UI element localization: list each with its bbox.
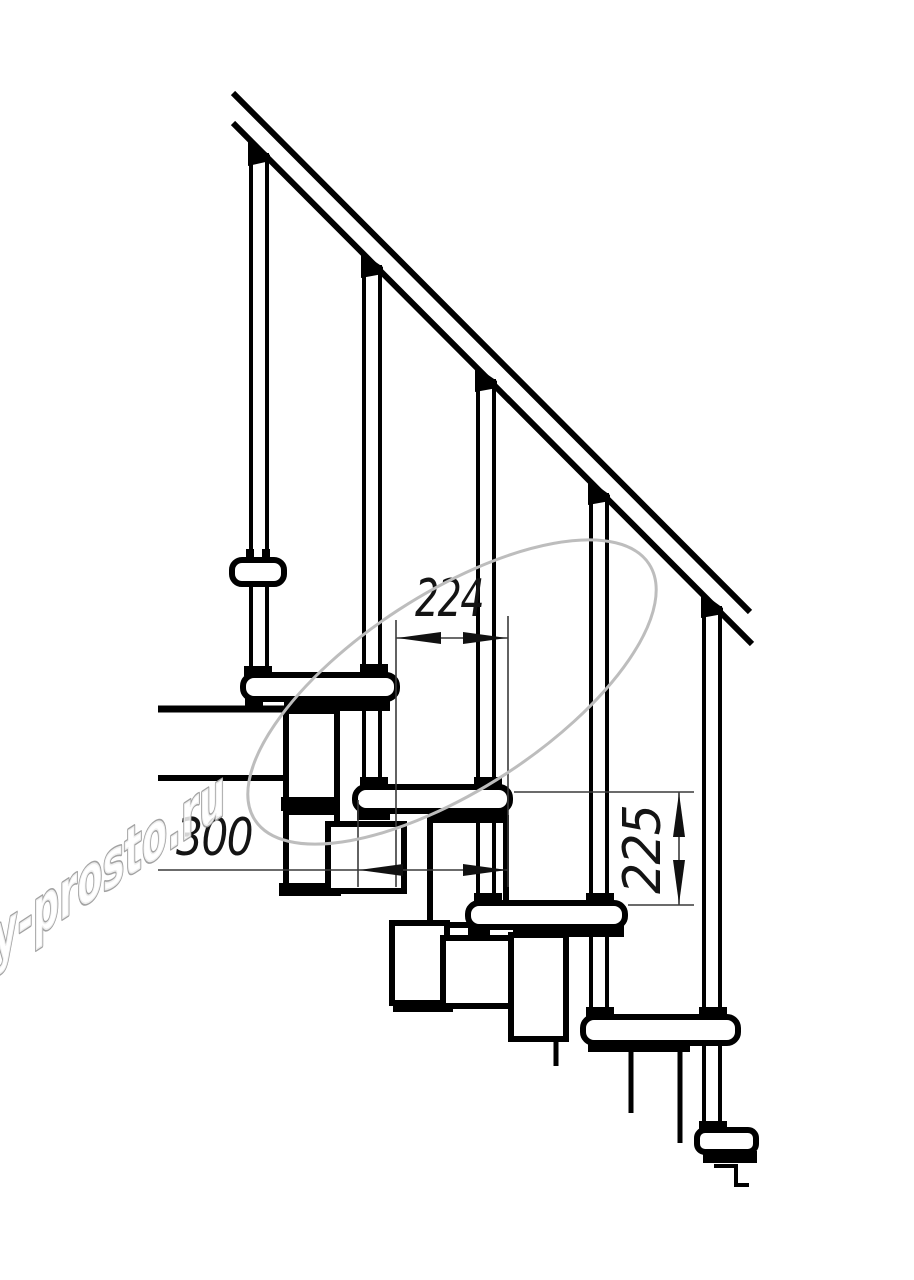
baluster-cap bbox=[474, 893, 502, 903]
module-box bbox=[511, 935, 566, 1039]
tread-3 bbox=[468, 903, 625, 927]
module-box bbox=[328, 824, 404, 891]
technical-drawing-page: 224 300 225 lestnicy-prosto.ru bbox=[0, 0, 914, 1280]
dimension-arrow bbox=[673, 860, 685, 904]
module-box bbox=[392, 923, 447, 1003]
tread-2 bbox=[355, 787, 510, 811]
module-edge-line bbox=[714, 1166, 749, 1185]
baluster-cap bbox=[360, 664, 388, 676]
baluster-4 bbox=[591, 495, 607, 1017]
baluster-cap bbox=[586, 1007, 614, 1017]
baluster-cap bbox=[699, 1121, 727, 1131]
tread-1 bbox=[243, 675, 397, 699]
baluster-3 bbox=[478, 381, 494, 903]
module-box bbox=[286, 711, 337, 803]
baluster-cap bbox=[699, 1007, 727, 1017]
stringer-modules bbox=[279, 711, 749, 1185]
watermark-text: lestnicy-prosto.ru bbox=[0, 752, 225, 1070]
module-box bbox=[443, 938, 517, 1006]
tread-4 bbox=[583, 1017, 738, 1043]
dimension-label-step-run: 224 bbox=[415, 569, 483, 629]
dimension-label-riser-height: 225 bbox=[613, 806, 673, 894]
dimension-arrow bbox=[397, 632, 441, 644]
baluster-cap bbox=[586, 893, 614, 903]
baluster-cap bbox=[244, 666, 272, 676]
tread-5 bbox=[697, 1130, 756, 1152]
staircase-drawing: 224 300 225 lestnicy-prosto.ru bbox=[0, 0, 914, 1280]
baluster-5 bbox=[704, 608, 720, 1131]
baluster-1 bbox=[251, 155, 267, 676]
baluster-cap bbox=[360, 777, 388, 787]
dimension-arrow bbox=[673, 793, 685, 837]
baluster-collar bbox=[232, 560, 284, 584]
